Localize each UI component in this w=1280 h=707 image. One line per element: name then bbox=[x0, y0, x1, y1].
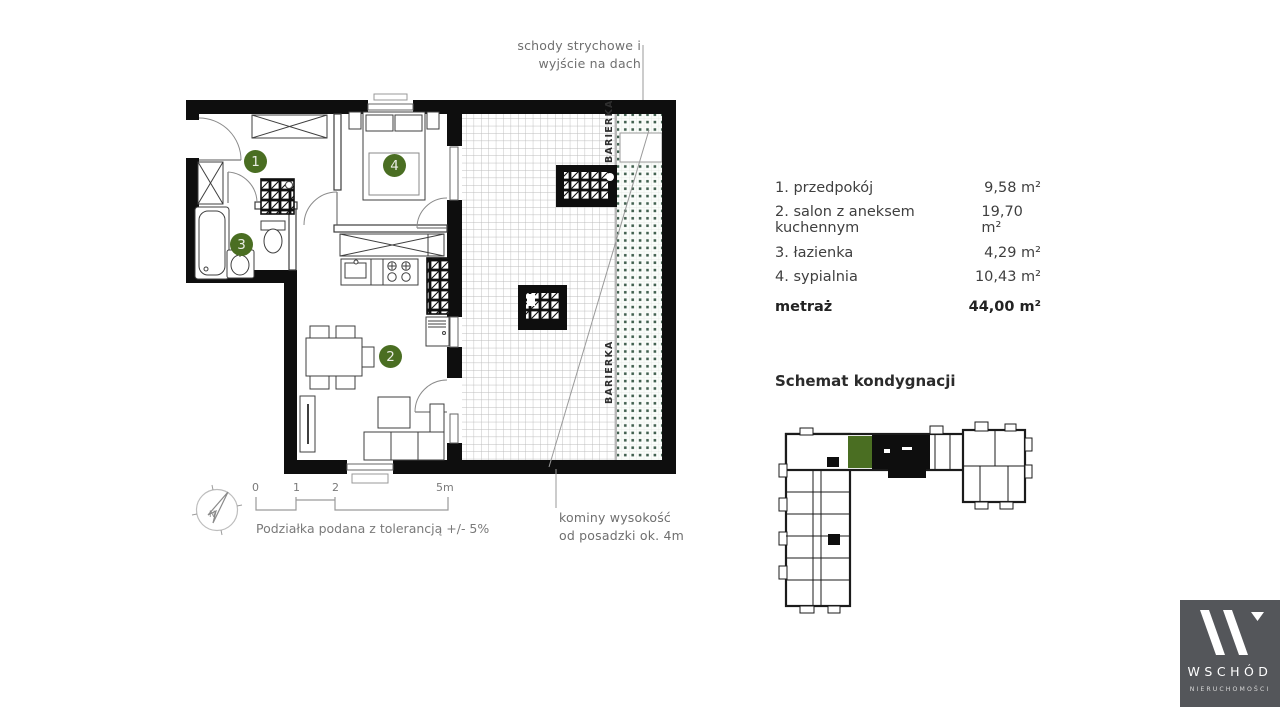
bedroom-top-window bbox=[368, 104, 413, 110]
room-list-row: 1. przedpokój 9,58 m² bbox=[775, 180, 1041, 196]
stove bbox=[383, 259, 418, 285]
room-number: 3 bbox=[237, 237, 246, 253]
chair bbox=[336, 376, 355, 389]
highlighted-unit bbox=[848, 436, 872, 468]
room-list: 1. przedpokój 9,58 m² 2. salon z aneksem… bbox=[775, 180, 1041, 315]
room-area: 19,70 m² bbox=[981, 204, 1041, 236]
room-list-row: 3. łazienka 4,29 m² bbox=[775, 245, 1041, 261]
kitchen-window bbox=[450, 317, 458, 347]
room-badge-1: 1 bbox=[244, 150, 267, 173]
annotation-line: kominy wysokość bbox=[559, 509, 684, 527]
room-badge-3: 3 bbox=[230, 233, 253, 256]
room-area: 4,29 m² bbox=[984, 245, 1041, 261]
scale-tick-5m: 5m bbox=[436, 481, 454, 494]
compass: N bbox=[192, 485, 242, 535]
brand-logo: WSCHÓD NIERUCHOMOŚCI bbox=[1180, 600, 1280, 707]
total-area: 44,00 m² bbox=[969, 299, 1041, 315]
room-number: 1 bbox=[251, 154, 260, 170]
scale-tolerance-note: Podziałka podana z tolerancją +/- 5% bbox=[256, 521, 489, 536]
annotation-line: schody strychowe i bbox=[517, 37, 641, 55]
unit-terrace-area bbox=[872, 435, 930, 469]
bathroom-door-arc bbox=[228, 172, 257, 202]
room-area: 10,43 m² bbox=[975, 269, 1041, 285]
dining-table bbox=[306, 338, 362, 376]
room-badge-4: 4 bbox=[383, 154, 406, 177]
total-label: metraż bbox=[775, 299, 832, 315]
annotation-line: wyjście na dach bbox=[517, 55, 641, 73]
kitchen-duct bbox=[427, 258, 449, 314]
room-number: 2 bbox=[386, 349, 395, 365]
living-bottom-window bbox=[347, 464, 393, 470]
room-label: 2. salon z aneksem kuchennym bbox=[775, 204, 981, 236]
chair bbox=[336, 326, 355, 339]
nightstand-left bbox=[349, 112, 361, 129]
sofa bbox=[364, 432, 444, 460]
chair bbox=[310, 376, 329, 389]
sofa-chaise bbox=[430, 404, 444, 432]
bedroom-side-window bbox=[450, 147, 458, 200]
chimney-annotation: kominy wysokość od posadzki ok. 4m bbox=[559, 509, 684, 545]
floorplan-page: BARIERKA BARIERKA N 0 1 2 5m bbox=[0, 0, 1280, 707]
bedroom-window-arc bbox=[417, 198, 447, 228]
building-schematic bbox=[779, 422, 1032, 613]
compass-n-label: N bbox=[209, 510, 215, 520]
scale-bar: 0 1 2 5m bbox=[252, 481, 454, 510]
coffee-table bbox=[378, 397, 410, 428]
chair bbox=[310, 326, 329, 339]
schematic-title: Schemat kondygnacji bbox=[775, 372, 955, 390]
room-badge-2: 2 bbox=[379, 345, 402, 368]
room-label: 1. przedpokój bbox=[775, 180, 873, 196]
room-label: 4. sypialnia bbox=[775, 269, 858, 285]
entrance-door-arc bbox=[199, 118, 241, 160]
terrace-green-strip bbox=[617, 114, 662, 460]
room-area: 9,58 m² bbox=[984, 180, 1041, 196]
logo-subtitle-text: NIERUCHOMOŚCI bbox=[1190, 684, 1271, 693]
room-list-row: 4. sypialnia 10,43 m² bbox=[775, 269, 1041, 285]
barierka-label-bottom: BARIERKA bbox=[604, 340, 615, 404]
roof-stairs-annotation: schody strychowe i wyjście na dach bbox=[517, 37, 641, 73]
room-label: 3. łazienka bbox=[775, 245, 853, 261]
bedroom-door-arc bbox=[304, 192, 337, 225]
barierka-label-top: BARIERKA bbox=[604, 99, 615, 163]
logo-brand-text: WSCHÓD bbox=[1188, 664, 1273, 679]
logo-w-icon bbox=[1200, 610, 1264, 655]
annotation-line: od posadzki ok. 4m bbox=[559, 527, 684, 545]
living-fixed-window bbox=[450, 414, 458, 443]
furniture bbox=[195, 112, 449, 460]
scale-tick-0: 0 bbox=[252, 481, 259, 494]
total-area-row: metraż 44,00 m² bbox=[775, 299, 1041, 315]
floor-plan-graphic: BARIERKA BARIERKA N 0 1 2 5m bbox=[0, 0, 1280, 707]
room-list-row: 2. salon z aneksem kuchennym 19,70 m² bbox=[775, 204, 1041, 236]
scale-tick-1: 1 bbox=[293, 481, 300, 494]
room-number: 4 bbox=[390, 158, 399, 174]
nightstand-right bbox=[427, 112, 439, 129]
scale-tick-2: 2 bbox=[332, 481, 339, 494]
logo-graphic: WSCHÓD NIERUCHOMOŚCI bbox=[1180, 600, 1280, 707]
